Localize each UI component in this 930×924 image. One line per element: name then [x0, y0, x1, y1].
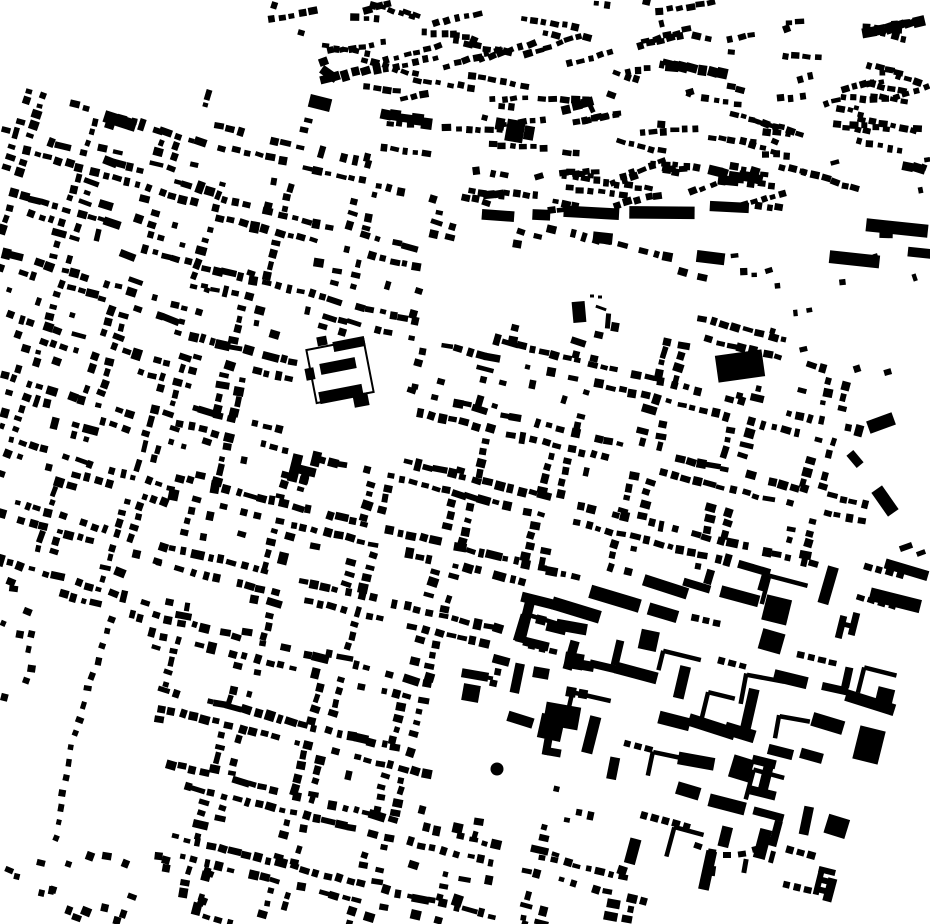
building: [767, 744, 794, 760]
building: [344, 642, 352, 651]
building: [716, 67, 729, 80]
building: [510, 143, 516, 149]
building: [585, 521, 593, 530]
building: [530, 17, 539, 24]
building: [21, 392, 32, 402]
building: [859, 80, 868, 89]
building: [38, 889, 45, 897]
building: [341, 47, 348, 53]
building: [350, 198, 358, 206]
building: [322, 313, 338, 323]
building: [231, 632, 242, 641]
building: [591, 885, 601, 895]
building: [118, 312, 129, 320]
building: [206, 842, 217, 851]
building: [680, 474, 692, 483]
building: [63, 530, 75, 541]
building: [279, 479, 289, 489]
building: [133, 459, 142, 472]
building: [219, 503, 228, 510]
building: [411, 894, 430, 905]
building: [65, 860, 73, 868]
building: [853, 424, 864, 437]
building: [296, 233, 306, 242]
building: [762, 151, 769, 157]
building: [476, 494, 491, 506]
building: [28, 196, 42, 205]
building: [25, 88, 32, 94]
plaza-bar: [461, 668, 489, 682]
building: [174, 133, 182, 141]
building: [661, 816, 670, 825]
building: [61, 268, 69, 274]
building: [448, 222, 457, 231]
building: [606, 49, 613, 56]
building: [482, 477, 494, 486]
building: [556, 489, 566, 499]
building: [83, 685, 92, 691]
building: [814, 436, 823, 443]
building: [119, 909, 128, 919]
building: [750, 117, 760, 125]
building: [359, 44, 366, 50]
building: [830, 437, 837, 446]
building: [191, 495, 201, 503]
building: [69, 593, 78, 603]
building: [292, 503, 306, 513]
building: [14, 167, 25, 178]
building: [575, 33, 582, 40]
building: [35, 297, 42, 306]
building: [719, 585, 760, 607]
building: [299, 866, 310, 875]
building: [8, 436, 14, 443]
building: [313, 765, 322, 776]
building: [875, 63, 885, 71]
building: [252, 366, 263, 375]
building: [379, 903, 389, 911]
building: [467, 853, 475, 859]
building: [699, 407, 708, 415]
building: [789, 484, 800, 493]
building: [232, 795, 243, 803]
building: [42, 571, 50, 578]
building: [284, 892, 291, 900]
building: [494, 480, 506, 492]
building: [383, 0, 391, 8]
building: [22, 607, 32, 616]
building: [429, 535, 443, 546]
building: [558, 876, 565, 882]
nw-long-bar: [102, 110, 137, 132]
building: [586, 504, 597, 515]
building: [381, 493, 388, 502]
building: [18, 269, 29, 277]
building: [587, 173, 594, 178]
building: [191, 621, 198, 628]
building: [313, 258, 324, 268]
building: [262, 279, 272, 286]
building: [426, 411, 436, 421]
building: [830, 159, 840, 166]
building: [423, 591, 434, 598]
building: [237, 530, 247, 538]
building: [346, 318, 362, 327]
building: [659, 468, 668, 477]
building: [238, 724, 248, 734]
building: [648, 129, 657, 135]
building: [411, 58, 419, 66]
building: [265, 612, 274, 619]
building: [228, 650, 238, 659]
building: [198, 623, 210, 634]
building: [660, 128, 667, 136]
building: [257, 909, 268, 919]
building: [517, 487, 528, 498]
building: [808, 559, 819, 568]
building: [165, 760, 177, 771]
building: [783, 152, 790, 160]
building: [296, 761, 306, 771]
building: [900, 36, 906, 43]
building: [213, 861, 224, 872]
building: [632, 75, 640, 84]
building: [27, 664, 36, 672]
building: [12, 426, 20, 433]
building: [345, 919, 353, 924]
building: [360, 851, 368, 859]
building: [237, 304, 247, 311]
building: [205, 511, 214, 521]
building: [404, 601, 412, 611]
building: [377, 505, 387, 514]
i-beam-building: [758, 763, 774, 791]
building: [368, 542, 379, 548]
building: [821, 174, 832, 183]
building: [831, 97, 841, 103]
building: [296, 288, 305, 294]
building: [140, 599, 150, 607]
building: [818, 416, 825, 425]
building: [282, 206, 289, 213]
building: [677, 402, 687, 408]
building: [331, 586, 338, 593]
building: [244, 581, 256, 591]
building: [780, 336, 786, 342]
building: [62, 453, 70, 460]
building: [506, 483, 514, 493]
building: [782, 53, 789, 60]
building: [751, 273, 757, 278]
building: [95, 402, 102, 408]
building: [879, 93, 887, 100]
se-arc-row: [693, 842, 703, 850]
building: [179, 242, 186, 248]
building: [240, 561, 249, 570]
building: [451, 822, 463, 834]
building: [298, 523, 307, 532]
building: [354, 606, 362, 618]
building: [442, 522, 453, 531]
building: [540, 19, 546, 26]
building: [697, 551, 708, 559]
building: [594, 435, 604, 444]
building: [360, 230, 371, 239]
building: [18, 405, 26, 414]
building: [847, 107, 853, 113]
building: [616, 530, 626, 537]
building: [137, 118, 147, 131]
building: [268, 249, 278, 259]
building: [566, 59, 574, 67]
building: [227, 867, 235, 873]
building: [818, 363, 827, 373]
building: [397, 314, 409, 322]
building: [82, 424, 100, 436]
building: [352, 155, 360, 166]
building: [517, 42, 524, 50]
building: [184, 257, 193, 265]
building: [242, 201, 251, 209]
building: [52, 291, 61, 298]
building: [308, 288, 317, 298]
building: [529, 345, 536, 353]
building: [777, 94, 785, 102]
manor-estate: [319, 357, 356, 375]
building: [273, 853, 284, 861]
building: [578, 449, 586, 457]
building: [130, 347, 143, 361]
building: [875, 566, 883, 574]
building: [69, 268, 81, 279]
building: [444, 233, 455, 241]
building: [392, 798, 403, 808]
building: [667, 543, 674, 550]
building: [629, 532, 641, 540]
building: [151, 644, 161, 651]
building: [113, 529, 121, 539]
building: [147, 627, 156, 638]
building: [799, 550, 812, 560]
east-dashes: [916, 549, 926, 557]
building: [490, 170, 497, 178]
building: [260, 730, 269, 738]
building: [729, 162, 739, 171]
building: [290, 809, 298, 815]
building: [121, 859, 131, 869]
building: [381, 884, 392, 895]
building: [198, 425, 208, 433]
building: [431, 640, 440, 649]
building: [103, 216, 122, 229]
building: [692, 476, 703, 486]
building: [735, 86, 746, 95]
building: [335, 820, 348, 830]
building: [415, 554, 425, 561]
building: [494, 668, 502, 676]
building: [836, 105, 846, 113]
courtyard-manor: [522, 636, 549, 651]
building: [513, 189, 521, 197]
building: [193, 354, 203, 361]
building: [437, 413, 447, 424]
building: [62, 774, 69, 781]
building: [373, 85, 382, 92]
building: [423, 79, 432, 85]
building: [458, 876, 471, 883]
building: [839, 496, 847, 504]
building: [103, 368, 111, 377]
building: [175, 611, 192, 621]
building: [202, 914, 211, 921]
building: [520, 551, 531, 562]
building: [108, 467, 116, 475]
yard-blob: [610, 322, 619, 332]
building: [95, 657, 103, 666]
building: [635, 185, 642, 191]
building: [284, 532, 296, 542]
building: [576, 413, 585, 420]
building: [479, 376, 487, 384]
building: [868, 587, 922, 613]
building: [35, 545, 41, 553]
building: [149, 160, 164, 167]
building: [526, 39, 537, 49]
building: [260, 440, 266, 447]
building: [784, 554, 791, 561]
building: [219, 181, 226, 187]
building: [533, 233, 542, 240]
building: [211, 204, 220, 213]
building: [263, 370, 270, 377]
building: [722, 518, 733, 527]
building: [481, 438, 489, 445]
building: [369, 551, 379, 559]
building: [853, 364, 862, 373]
building: [408, 478, 418, 485]
building: [442, 63, 450, 70]
building: [489, 141, 498, 147]
building: [806, 414, 814, 424]
building: [884, 66, 893, 73]
building: [413, 50, 421, 56]
building: [742, 542, 749, 551]
building: [248, 781, 257, 788]
plaza-squares: [581, 660, 595, 672]
building: [822, 388, 833, 398]
building: [141, 440, 148, 453]
building: [336, 730, 343, 739]
building: [803, 886, 812, 894]
building: [26, 318, 35, 327]
building: [67, 284, 77, 291]
building: [51, 356, 62, 366]
building: [264, 900, 270, 906]
building: [26, 132, 35, 139]
district-west-edge-scatter: [0, 577, 36, 702]
building: [608, 871, 615, 878]
building: [805, 456, 816, 466]
building: [152, 249, 159, 255]
building: [428, 897, 436, 904]
building: [362, 664, 370, 671]
building: [651, 393, 662, 406]
building: [419, 90, 429, 99]
building: [24, 502, 32, 511]
building: [110, 342, 118, 351]
building: [274, 281, 282, 289]
building: [381, 688, 387, 695]
building: [195, 245, 208, 256]
building: [115, 407, 124, 414]
building: [271, 588, 281, 596]
building: [521, 16, 528, 22]
building: [190, 569, 198, 578]
building: [520, 915, 526, 921]
building: [708, 690, 736, 701]
building: [65, 759, 71, 767]
district-left-strip: [0, 88, 226, 623]
building: [603, 911, 618, 922]
building: [201, 237, 209, 243]
building: [612, 113, 619, 118]
building: [837, 405, 847, 412]
building: [188, 332, 199, 343]
building: [147, 372, 157, 379]
building: [228, 344, 243, 351]
building: [850, 94, 856, 100]
building: [465, 547, 476, 555]
building: [799, 806, 814, 836]
building: [581, 715, 601, 754]
building: [424, 663, 435, 671]
building: [760, 171, 769, 177]
building: [366, 481, 376, 489]
building: [563, 205, 619, 219]
building: [197, 809, 206, 817]
building: [545, 566, 558, 577]
building: [412, 606, 421, 614]
building: [396, 121, 403, 127]
building: [382, 86, 392, 94]
building: [0, 620, 7, 627]
building: [764, 267, 773, 274]
building: [78, 198, 92, 207]
building: [380, 39, 386, 45]
building: [236, 316, 242, 324]
building: [500, 171, 509, 178]
building: [382, 740, 389, 748]
building: [691, 530, 702, 538]
building: [99, 417, 106, 426]
building: [720, 445, 730, 459]
building: [99, 575, 106, 583]
building: [277, 551, 289, 565]
building: [299, 578, 309, 585]
building: [220, 793, 228, 800]
building: [623, 567, 633, 576]
building: [204, 89, 213, 101]
building: [750, 393, 765, 403]
building: [588, 55, 594, 62]
building: [304, 306, 311, 315]
building: [363, 757, 372, 764]
building: [244, 292, 254, 302]
building: [587, 188, 594, 195]
building: [582, 33, 592, 42]
building: [339, 153, 348, 163]
building: [127, 892, 137, 900]
